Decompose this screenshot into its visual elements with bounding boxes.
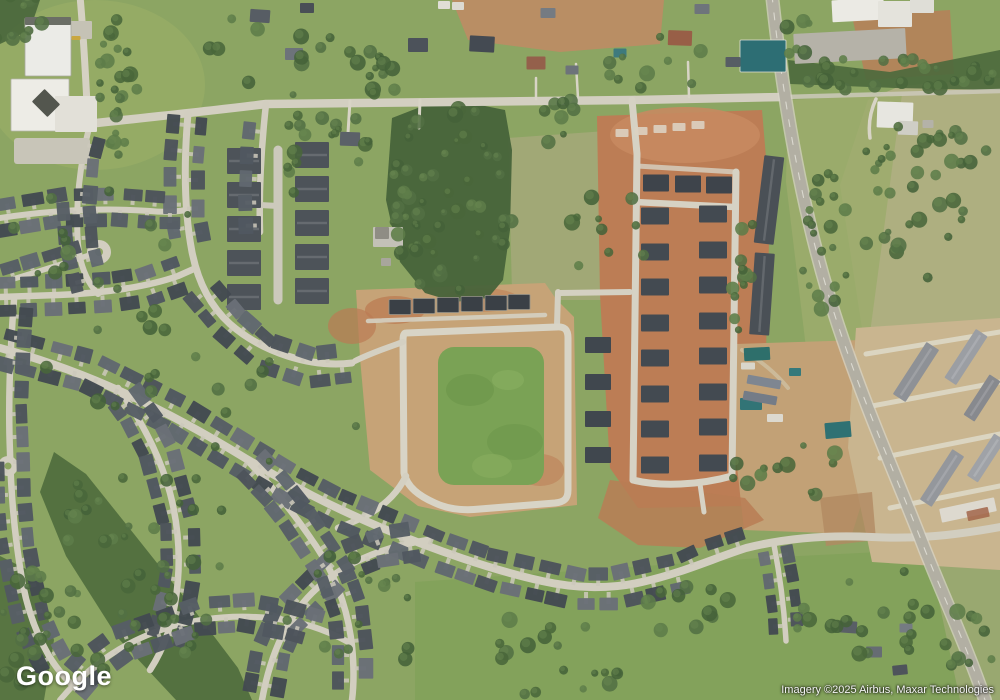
attribution: Imagery ©2025 Airbus, Maxar Technologies bbox=[781, 684, 994, 696]
attribution-text: Imagery ©2025 Airbus, Maxar Technologies bbox=[781, 684, 994, 696]
map-viewport: Google Imagery ©2025 Airbus, Maxar Techn… bbox=[0, 0, 1000, 700]
google-logo[interactable]: Google bbox=[16, 661, 112, 692]
satellite-imagery[interactable] bbox=[0, 0, 1000, 700]
